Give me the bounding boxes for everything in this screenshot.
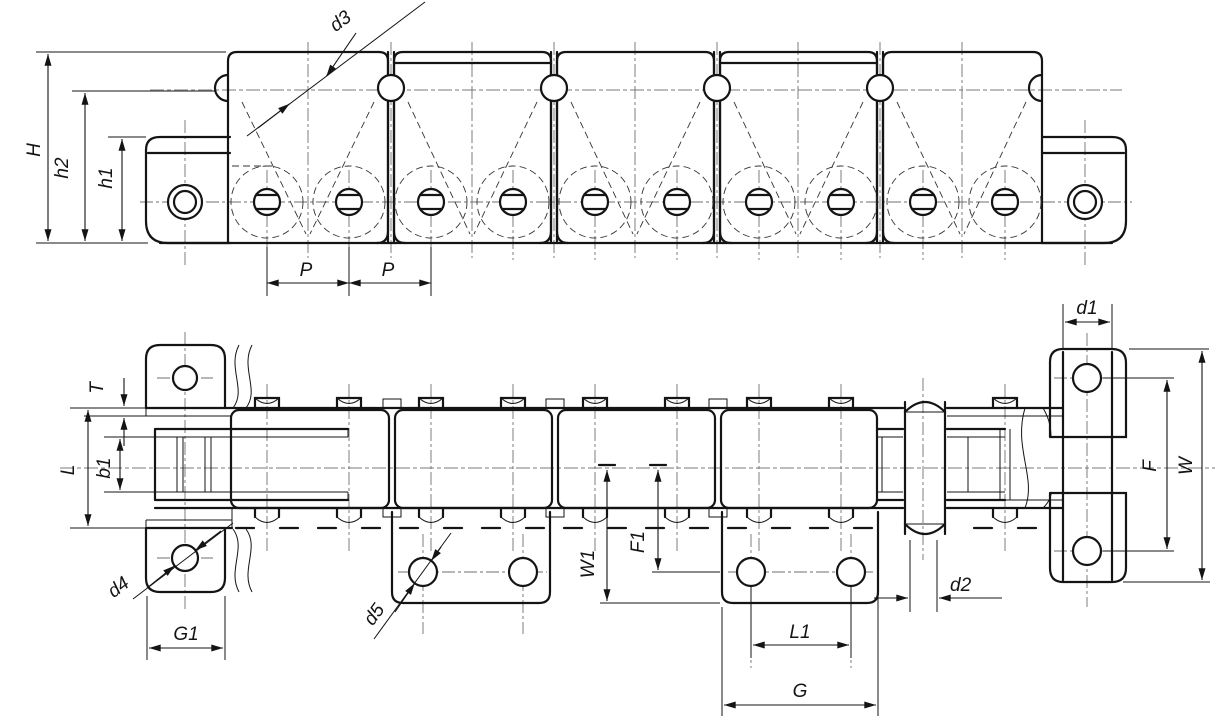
dim-G: G <box>722 512 878 716</box>
dim-label-d2: d2 <box>950 575 972 596</box>
dim-label-P-right: P <box>382 260 395 281</box>
dim-label-F: F <box>1140 459 1161 472</box>
dim-T: T <box>84 378 146 446</box>
junction-pin-bosses <box>377 52 894 243</box>
dim-label-F1: F1 <box>628 531 649 553</box>
dim-d2: d2 <box>874 540 1002 612</box>
two-hole-plate-left <box>392 512 550 603</box>
dim-d3: d3 <box>247 2 425 136</box>
dim-label-H: H <box>24 143 45 157</box>
dim-d1: d1 <box>1063 298 1112 349</box>
two-hole-plate-right <box>722 512 878 603</box>
hidden-lug-outlines <box>231 102 1041 238</box>
dim-label-d5: d5 <box>360 600 390 630</box>
dim-pitch: P P <box>267 247 431 296</box>
top-view-elevation: H h2 h1 P P d3 <box>24 2 1132 296</box>
dim-G1: G1 <box>147 596 225 660</box>
dim-label-d4: d4 <box>104 573 134 602</box>
attachment-plate-rects <box>231 410 877 508</box>
chain-technical-drawing: H h2 h1 P P d3 <box>0 0 1229 721</box>
right-bent-attachment <box>1043 349 1126 582</box>
chain-link-plates <box>160 52 1112 243</box>
dim-label-L1: L1 <box>789 622 810 643</box>
junction-notches <box>383 399 727 517</box>
drawing-canvas: H h2 h1 P P d3 <box>0 0 1229 721</box>
dim-label-h2: h2 <box>52 157 73 179</box>
dim-label-h1: h1 <box>96 167 117 188</box>
dim-label-W: W <box>1176 455 1197 475</box>
top-view-centerlines <box>140 42 1132 266</box>
dim-label-G: G <box>793 681 808 702</box>
dim-d4: d4 <box>104 523 233 602</box>
plan-view: T L b1 W1 F1 L1 G G1 d4 <box>58 298 1215 716</box>
dim-label-T: T <box>87 381 108 394</box>
dim-L1: L1 <box>751 586 851 658</box>
dim-label-d3: d3 <box>326 7 356 37</box>
dim-W1: W1 <box>578 465 720 603</box>
break-line <box>1022 408 1029 508</box>
dim-h1: h1 <box>96 137 146 241</box>
dim-F: F <box>1103 378 1174 551</box>
dim-d5: d5 <box>360 533 451 639</box>
dim-label-b1: b1 <box>94 457 115 478</box>
dim-label-P-left: P <box>300 260 313 281</box>
pin-heads-top <box>255 398 1017 408</box>
left-end-tab <box>146 137 230 243</box>
dim-label-G1: G1 <box>173 624 198 645</box>
right-end-tab <box>1042 137 1126 243</box>
dim-label-W1: W1 <box>578 550 599 579</box>
dim-b1: b1 <box>94 437 172 492</box>
dim-F1: F1 <box>628 465 720 572</box>
dim-label-d1: d1 <box>1076 298 1097 319</box>
roller-and-inner-link <box>878 402 1063 534</box>
dim-label-L: L <box>58 465 79 476</box>
